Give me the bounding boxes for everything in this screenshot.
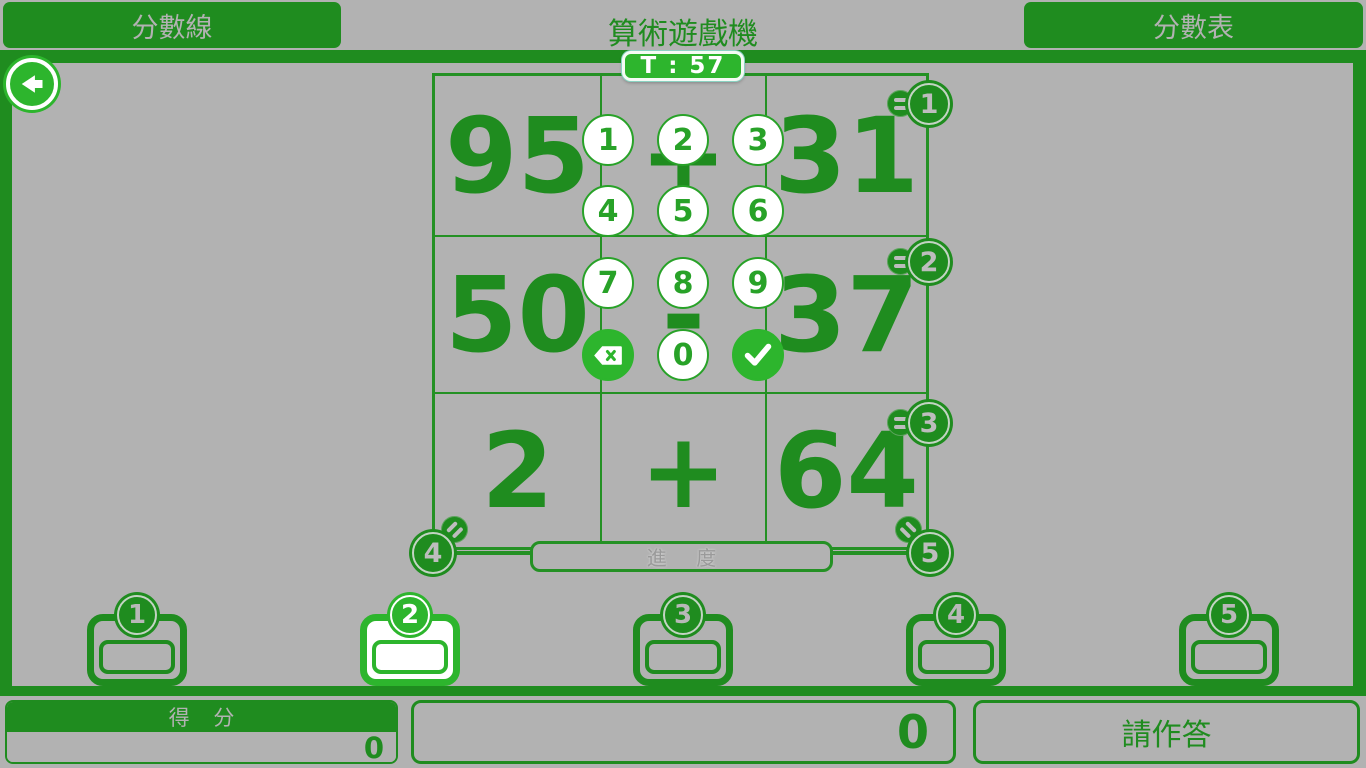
frame-right-edge — [1353, 50, 1366, 696]
corner-badge-5: 5 — [906, 529, 954, 577]
keypad-0[interactable]: 0 — [657, 329, 709, 381]
arrow-left-icon — [17, 70, 47, 98]
submit-answer-button[interactable]: 請作答 — [973, 700, 1360, 764]
corner-badge-4: 4 — [409, 529, 457, 577]
slot-number-badge: 2 — [387, 592, 433, 638]
slot-number-badge: 5 — [1206, 592, 1252, 638]
slot-value-field[interactable] — [372, 640, 448, 674]
answer-slot-3[interactable]: 3 — [633, 614, 733, 686]
operand-cell: 50 — [435, 237, 600, 392]
slot-value-field[interactable] — [1191, 640, 1267, 674]
operand-cell: 95 — [435, 76, 600, 235]
answer-slot-4[interactable]: 4 — [906, 614, 1006, 686]
answer-slot-2[interactable]: 2 — [360, 614, 460, 686]
row-equals-badge-2: 2 — [905, 238, 953, 286]
slot-number-badge: 3 — [660, 592, 706, 638]
slot-number-badge: 1 — [114, 592, 160, 638]
backspace-icon — [593, 345, 623, 366]
slot-value-field[interactable] — [645, 640, 721, 674]
arithmetic-game-screen: 分數線 算術遊戲機 分數表 T : 57 95 + 31 50 - 37 2 +… — [0, 0, 1366, 768]
keypad-9[interactable]: 9 — [732, 257, 784, 309]
slot-value-field[interactable] — [918, 640, 994, 674]
operator-cell: + — [602, 394, 765, 547]
answer-slot-1[interactable]: 1 — [87, 614, 187, 686]
score-table-button[interactable]: 分數表 — [1024, 2, 1363, 48]
keypad-7[interactable]: 7 — [582, 257, 634, 309]
keypad-2[interactable]: 2 — [657, 114, 709, 166]
row-equals-badge-1: 1 — [905, 80, 953, 128]
keypad-6[interactable]: 6 — [732, 185, 784, 237]
frame-bottom-edge — [0, 686, 1366, 696]
check-icon — [742, 342, 774, 368]
score-label: 得 分 — [7, 702, 396, 732]
slot-number-badge: 4 — [933, 592, 979, 638]
timer-badge: T : 57 — [622, 51, 744, 81]
keypad-confirm-button[interactable] — [732, 329, 784, 381]
keypad-4[interactable]: 4 — [582, 185, 634, 237]
score-value: 0 — [7, 732, 396, 764]
frame-left-edge — [0, 50, 12, 696]
keypad-3[interactable]: 3 — [732, 114, 784, 166]
slot-value-field[interactable] — [99, 640, 175, 674]
keypad-1[interactable]: 1 — [582, 114, 634, 166]
back-button[interactable] — [6, 58, 58, 110]
answer-input-display: 0 — [411, 700, 956, 764]
score-panel: 得 分 0 — [5, 700, 398, 764]
keypad-5[interactable]: 5 — [657, 185, 709, 237]
progress-bar: 進 度 — [530, 541, 833, 572]
row-equals-badge-3: 3 — [905, 399, 953, 447]
answer-slot-5[interactable]: 5 — [1179, 614, 1279, 686]
keypad-8[interactable]: 8 — [657, 257, 709, 309]
keypad-backspace-button[interactable] — [582, 329, 634, 381]
